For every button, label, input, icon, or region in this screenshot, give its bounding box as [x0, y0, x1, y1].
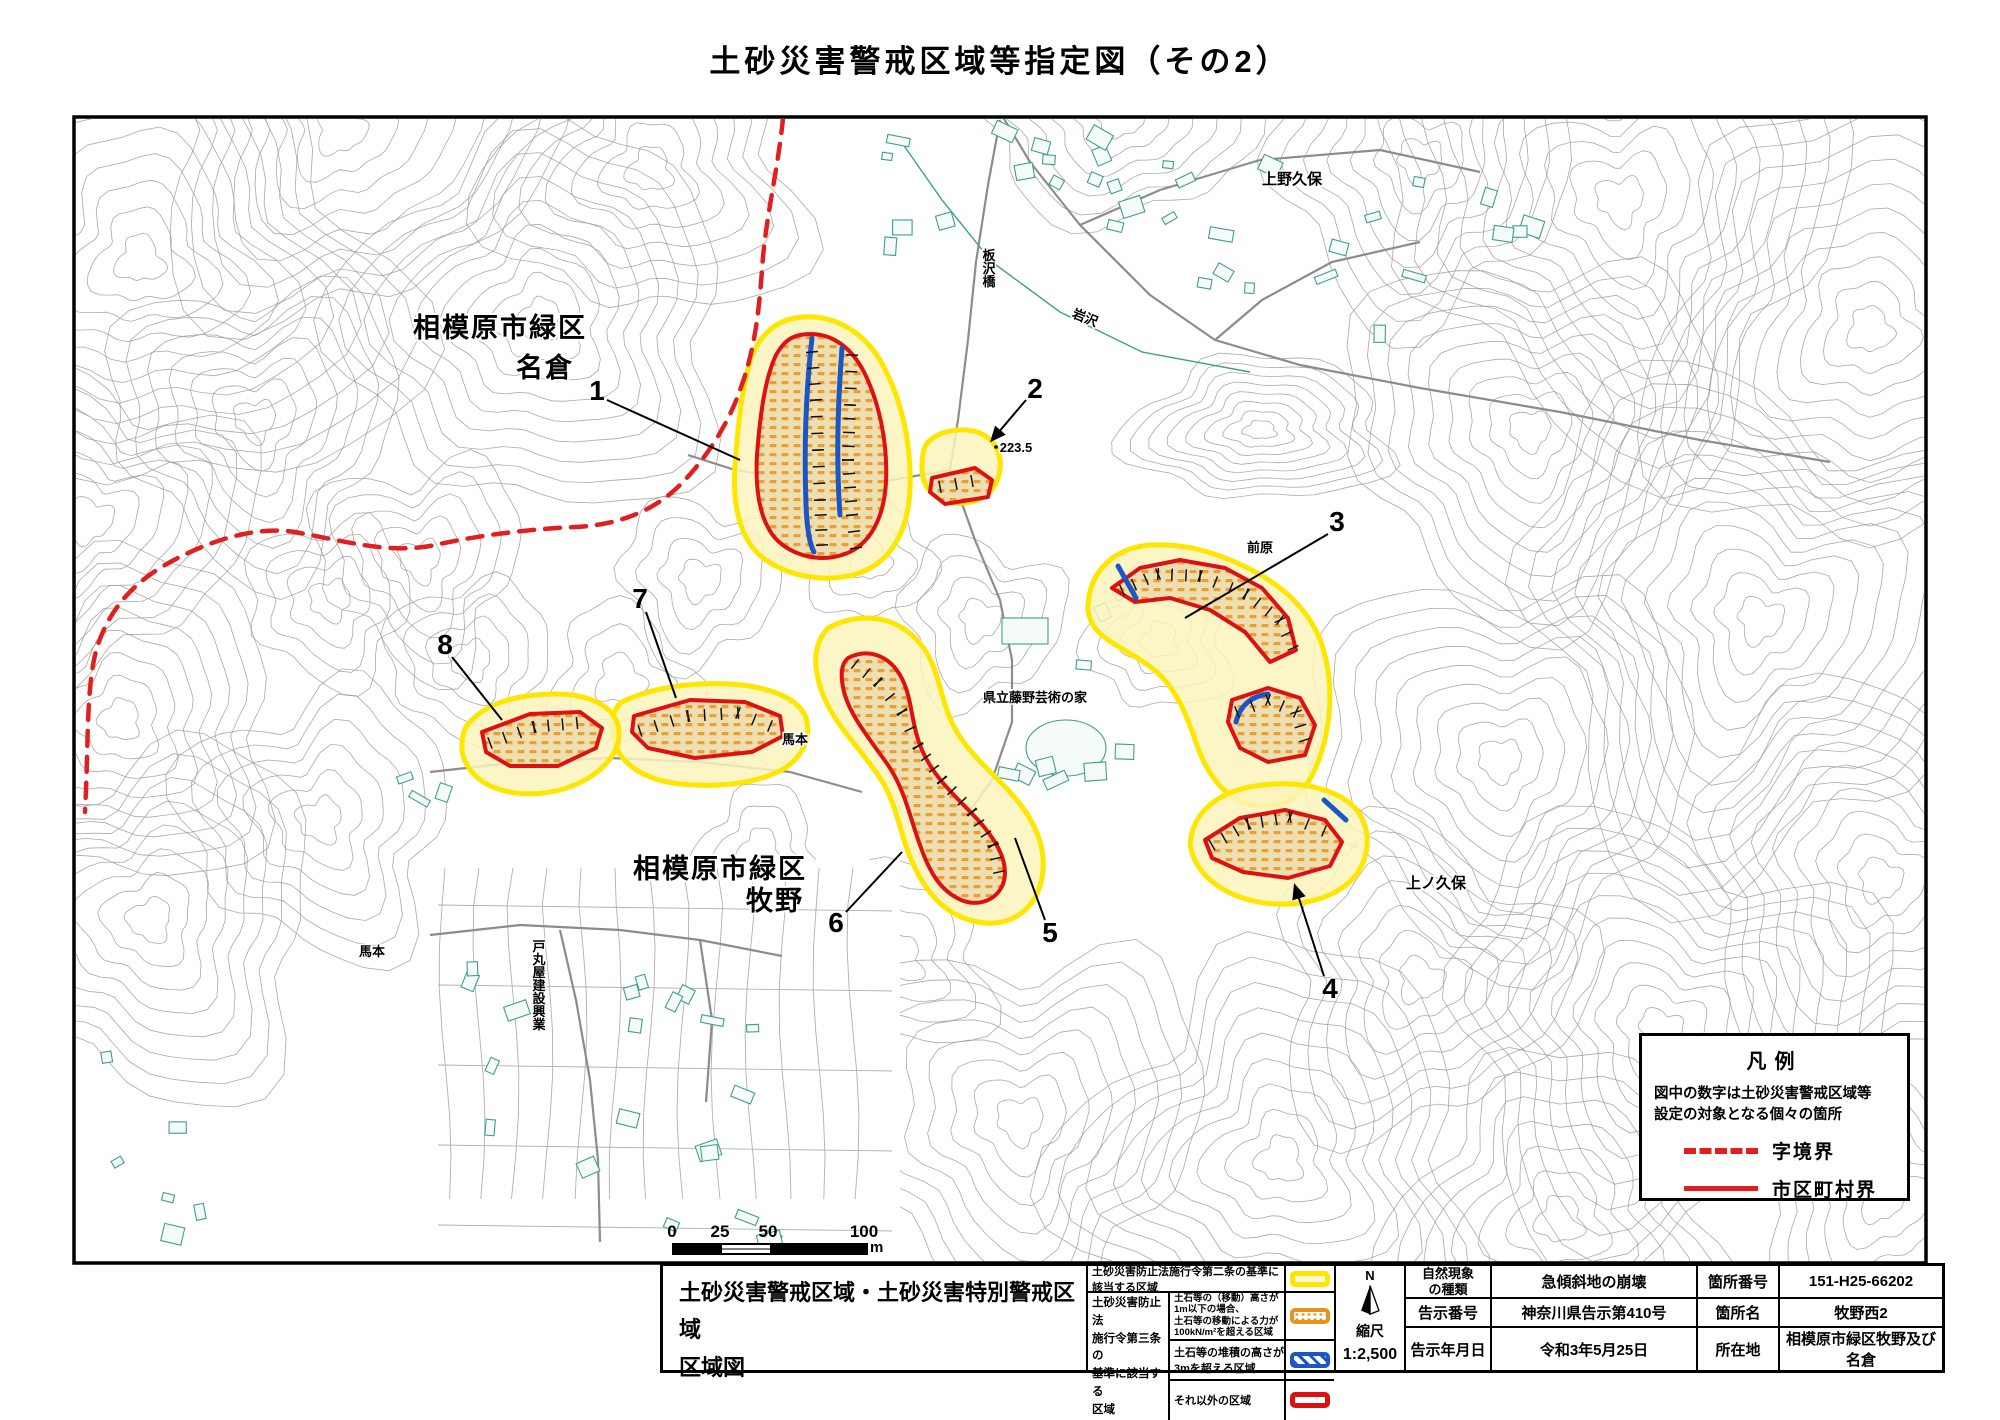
slope-tick	[813, 483, 825, 484]
zone-number-5: 5	[1042, 917, 1058, 948]
slope-tick	[807, 368, 819, 369]
building	[1492, 225, 1514, 242]
notice-number-value: 神奈川県告示第410号	[1490, 1297, 1696, 1326]
art-house-building	[1002, 618, 1048, 644]
spot-elevation-dot	[994, 445, 998, 449]
footer-table: 土砂災害警戒区域・土砂災害特別警戒区域 区域図 土砂災害防止法施行令第二条の基準…	[660, 1263, 1945, 1373]
scale-value: 1:2,500	[1343, 1346, 1397, 1364]
law3-group-label: 土砂災害防止法 施行令第三条の 基準に該当する 区域	[1088, 1293, 1170, 1420]
building	[161, 1223, 185, 1245]
legend-box: 凡例 図中の数字は土砂災害警戒区域等 設定の対象となる個々の箇所 字境界 市区町…	[1639, 1033, 1910, 1201]
north-scale-cell: N 縮尺 1:2,500	[1334, 1266, 1406, 1370]
slope-tick	[809, 384, 821, 385]
building	[485, 1119, 496, 1136]
building	[1115, 744, 1134, 759]
notice-date-value: 令和3年5月25日	[1490, 1326, 1696, 1370]
label-umamoto-a: 馬本	[782, 732, 808, 747]
site-number-label: 箇所番号	[1696, 1266, 1778, 1297]
site-name-value: 牧野西2	[1778, 1297, 1942, 1326]
scale-tick-25: 25	[711, 1222, 730, 1242]
blue-zone-swatch	[1290, 1352, 1330, 1368]
label-tomaru: 戸丸屋建設興業	[531, 940, 547, 1032]
slope-tick	[1158, 568, 1159, 580]
district-naguro-line1: 相模原市緑区	[413, 312, 587, 343]
north-arrow-icon	[1357, 1282, 1383, 1316]
slope-tick	[1172, 569, 1173, 581]
orange-zone-label: 土石等の（移動）高さが1m以下の場合、 土石等の移動による力が100kN/m²を…	[1170, 1293, 1284, 1339]
scale-tick-100: 100	[850, 1222, 878, 1242]
label-umamoto-b: 馬本	[359, 944, 385, 959]
label-itazawabashi: 板沢橋	[981, 248, 996, 289]
dashed-line-sample	[1684, 1148, 1758, 1154]
slope-tick	[844, 487, 856, 488]
legend-note-line1: 図中の数字は土砂災害警戒区域等	[1654, 1084, 1897, 1105]
north-letter: N	[1365, 1269, 1374, 1282]
solid-line-sample	[1684, 1186, 1758, 1191]
slope-tick	[845, 388, 857, 389]
building	[893, 220, 913, 235]
red-zone-swatch	[1290, 1392, 1330, 1408]
district-naguro-line2: 名倉	[516, 352, 574, 383]
yellow-zone-swatch	[1290, 1271, 1330, 1287]
slope-tick	[843, 473, 855, 474]
notice-date-label: 告示年月日	[1406, 1326, 1490, 1370]
building	[1035, 756, 1056, 776]
scale-label: 縮尺	[1356, 1321, 1384, 1341]
phenomenon-type-label: 自然現象の種類	[1406, 1266, 1490, 1297]
building	[467, 962, 478, 976]
label-elevation: 223.5	[1000, 440, 1033, 455]
building	[101, 1051, 113, 1063]
zone-legend-cell: 土砂災害防止法施行令第二条の基準に該当する区域 土砂災害防止法 施行令第三条の …	[1088, 1266, 1334, 1370]
slope-tick	[816, 545, 828, 546]
building	[1513, 226, 1527, 238]
slope-tick	[842, 460, 854, 461]
building	[169, 1122, 186, 1133]
building	[1042, 155, 1055, 165]
slope-tick	[845, 371, 857, 372]
zone-number-6: 6	[828, 907, 844, 938]
building	[884, 237, 897, 255]
building	[1374, 325, 1386, 342]
building	[628, 1018, 642, 1033]
slope-tick	[845, 501, 857, 502]
scale-bar: 0 25 50 100 m	[660, 1222, 900, 1260]
district-makino-line1: 相模原市緑区	[633, 853, 807, 884]
building	[1084, 762, 1107, 781]
scale-unit: m	[870, 1240, 883, 1255]
law2-label: 土砂災害防止法施行令第二条の基準に該当する区域	[1088, 1266, 1284, 1291]
building	[1245, 283, 1255, 294]
zone-number-4: 4	[1322, 973, 1338, 1004]
slope-tick	[813, 466, 825, 467]
building	[1076, 660, 1092, 670]
scale-tick-0: 0	[667, 1222, 676, 1242]
map-sheet-title-line1: 土砂災害警戒区域・土砂災害特別警戒区域	[679, 1274, 1082, 1349]
legend-title: 凡例	[1642, 1045, 1907, 1074]
building	[882, 152, 893, 160]
phenomenon-type-value: 急傾斜地の崩壊	[1490, 1266, 1696, 1297]
orange-zone-swatch	[1290, 1308, 1330, 1324]
slope-tick	[815, 515, 827, 516]
location-label: 所在地	[1696, 1326, 1778, 1370]
slope-tick	[843, 446, 855, 447]
map-sheet-title-line2: 区域図	[679, 1349, 1082, 1386]
page: { "title": "土砂災害警戒区域等指定図（その2）", "map": {…	[0, 0, 2000, 1409]
legend-note-line2: 設定の対象となる個々の箇所	[1654, 1105, 1897, 1126]
building	[1163, 161, 1174, 169]
location-value: 相模原市緑区牧野及び名倉	[1778, 1326, 1942, 1370]
zone-number-2: 2	[1027, 373, 1043, 404]
zone-number-3: 3	[1329, 506, 1345, 537]
slope-tick	[815, 530, 827, 531]
site-name-label: 箇所名	[1696, 1297, 1778, 1326]
slope-tick	[844, 419, 856, 420]
slope-tick	[806, 352, 818, 353]
building	[1014, 163, 1035, 181]
slope-tick	[721, 708, 722, 720]
district-makino-line2: 牧野	[746, 886, 804, 916]
notice-number-label: 告示番号	[1406, 1297, 1490, 1326]
map-sheet-title-cell: 土砂災害警戒区域・土砂災害特別警戒区域 区域図	[663, 1266, 1088, 1370]
solid-line-label: 市区町村界	[1772, 1175, 1877, 1202]
building	[701, 1145, 719, 1162]
notice-info-grid: 自然現象の種類 急傾斜地の崩壊 箇所番号 151-H25-66202 告示番号 …	[1406, 1266, 1942, 1370]
scale-bar-graphic	[672, 1243, 868, 1255]
zone-number-8: 8	[437, 629, 453, 660]
label-maehara: 前原	[1247, 540, 1273, 555]
building	[1197, 277, 1212, 289]
site-number-value: 151-H25-66202	[1778, 1266, 1942, 1297]
label-kaminokubo: 上ノ久保	[1406, 874, 1467, 892]
dashed-line-label: 字境界	[1772, 1137, 1835, 1164]
building	[747, 1024, 759, 1032]
building	[1413, 177, 1425, 188]
label-geijutsunoie: 県立藤野芸術の家	[983, 690, 1088, 705]
blue-zone-label: 土石等の堆積の高さが3mを超える区域	[1170, 1341, 1284, 1380]
slope-tick	[688, 710, 689, 722]
slope-tick	[704, 709, 705, 721]
slope-tick	[1186, 569, 1187, 581]
zone-number-1: 1	[589, 375, 605, 406]
zone7-special-area	[632, 700, 783, 758]
slope-tick	[811, 433, 823, 434]
scale-tick-50: 50	[759, 1222, 778, 1242]
red-zone-label: それ以外の区域	[1170, 1381, 1284, 1420]
slope-tick	[811, 416, 823, 417]
slope-tick	[814, 500, 826, 501]
zone-number-7: 7	[632, 583, 648, 614]
label-uenokubo: 上野久保	[1262, 170, 1323, 188]
